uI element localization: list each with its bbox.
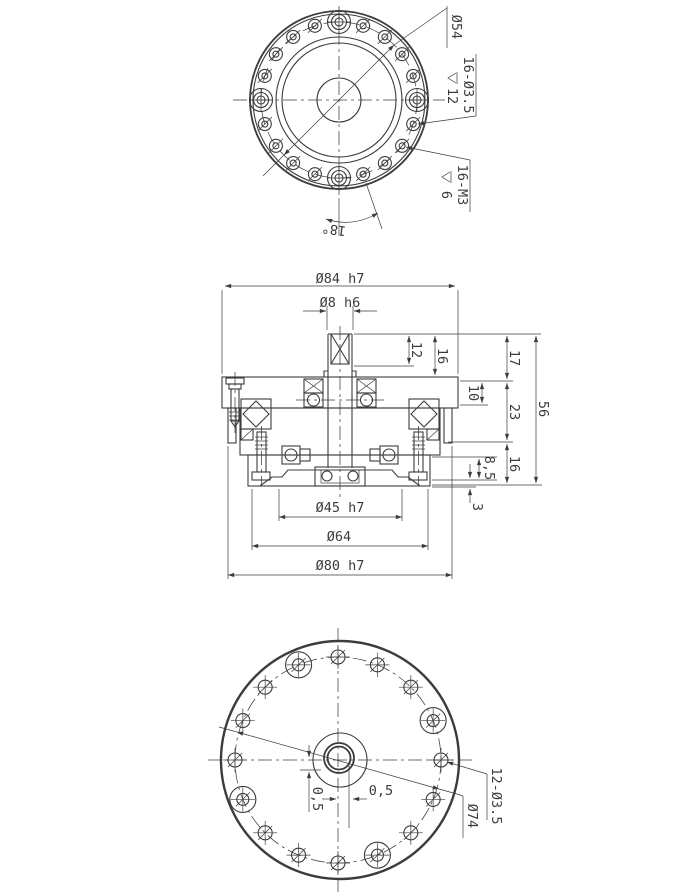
large-hole (327, 166, 351, 190)
crossed-roller-right (411, 401, 437, 427)
dia84-label: Ø84 h7 (316, 271, 365, 287)
small-hole (269, 47, 283, 61)
small-hole (356, 19, 370, 33)
roller-housing-left (241, 399, 271, 429)
dia74-tail (219, 727, 237, 732)
small-hole (223, 748, 247, 772)
stud-head-right (409, 472, 427, 480)
tap-note-label: 16-M3 (454, 165, 470, 206)
dia54-label: Ø54 (448, 15, 464, 39)
ball-bearing (348, 471, 358, 481)
small-hole (395, 47, 409, 61)
top-view: Ø54 16-Ø3.5 12 16-M3 6 18° (233, 6, 476, 239)
small-hole (253, 675, 277, 699)
large-hole (420, 708, 446, 734)
section-view: Ø84 h7 Ø8 h6 12 16 17 10 23 16 56 8,5 (222, 271, 551, 579)
d10-label: 10 (465, 385, 481, 401)
drill-depth-note: 12 (444, 72, 460, 104)
small-hole (365, 653, 389, 677)
d3-label: 3 (469, 503, 485, 511)
holes-note-leader (447, 762, 487, 774)
small-hole (253, 821, 277, 845)
small-hole (258, 69, 272, 83)
small-hole (286, 156, 300, 170)
dia8-label: Ø8 h6 (320, 295, 361, 311)
small-hole (326, 645, 350, 669)
dia54-line-tail (263, 155, 284, 176)
hub-bore (328, 747, 351, 770)
engineering-drawing: Ø54 16-Ø3.5 12 16-M3 6 18° (0, 0, 673, 896)
small-hole (269, 139, 283, 153)
small-hole (399, 675, 423, 699)
small-hole (395, 139, 409, 153)
angle-label: 18° (321, 219, 347, 238)
dia64-label: Ø64 (327, 529, 351, 545)
right-rim (444, 408, 452, 443)
small-hole (378, 156, 392, 170)
small-hole (326, 851, 350, 875)
small-hole (287, 843, 311, 867)
drill-depth-value: 12 (444, 88, 460, 104)
d17-label: 17 (506, 350, 522, 366)
large-hole (405, 88, 429, 112)
dia74-elbow (457, 794, 463, 796)
dia54-leader (394, 8, 447, 45)
hatch (427, 429, 439, 440)
small-hole (286, 30, 300, 44)
small-hole (308, 19, 322, 33)
small-hole (378, 30, 392, 44)
small-hole (399, 821, 423, 845)
stud-head-left (252, 472, 270, 480)
d23-label: 23 (506, 404, 522, 420)
roller-housing-right (409, 399, 439, 429)
tap-depth-note: 6 (438, 171, 454, 199)
tap-depth-value: 6 (438, 191, 454, 199)
d16-top-label: 16 (434, 348, 450, 364)
angle-ext-2 (366, 183, 382, 229)
large-hole (230, 786, 256, 812)
large-hole (286, 652, 312, 678)
drawing-page: Ø54 16-Ø3.5 12 16-M3 6 18° (0, 0, 673, 896)
small-hole (231, 709, 255, 733)
hatch (241, 429, 253, 440)
small-hole (429, 748, 453, 772)
depth-symbol-icon (448, 72, 457, 84)
dia74-label: Ø74 (464, 804, 480, 828)
dia45-label: Ø45 h7 (316, 500, 365, 516)
d12-label: 12 (408, 342, 424, 358)
dia80-label: Ø80 h7 (316, 558, 365, 574)
tap-note-leader (406, 147, 470, 160)
crossed-roller-left (243, 401, 269, 427)
d16-low-label: 16 (506, 456, 522, 472)
ball-bearing (322, 471, 332, 481)
d8-5-label: 8,5 (481, 456, 497, 480)
large-hole (327, 10, 351, 34)
off-h-label: 0,5 (369, 783, 393, 799)
large-hole (364, 842, 390, 868)
bottom-view: Ø74 12-Ø3.5 0,5 0,5 (208, 628, 504, 893)
large-hole (249, 88, 273, 112)
d56-label: 56 (535, 401, 551, 417)
depth-symbol-icon (442, 171, 451, 183)
small-hole (356, 167, 370, 181)
holes-note-label: 12-Ø3.5 (488, 768, 504, 825)
small-hole (421, 787, 445, 811)
small-hole (308, 167, 322, 181)
small-hole (406, 69, 420, 83)
off-v-label: 0,5 (309, 787, 325, 811)
small-hole (258, 117, 272, 131)
drill-note-label: 16-Ø3.5 (460, 57, 476, 114)
